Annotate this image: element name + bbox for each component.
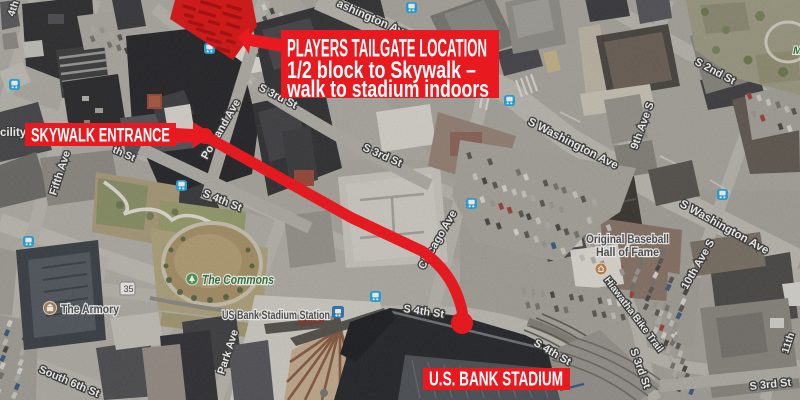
svg-text:walk to stadium indoors: walk to stadium indoors — [286, 76, 489, 103]
svg-text:U.S. BANK STADIUM: U.S. BANK STADIUM — [429, 369, 563, 391]
svg-text:SKYWALK ENTRANCE: SKYWALK ENTRANCE — [31, 125, 170, 147]
